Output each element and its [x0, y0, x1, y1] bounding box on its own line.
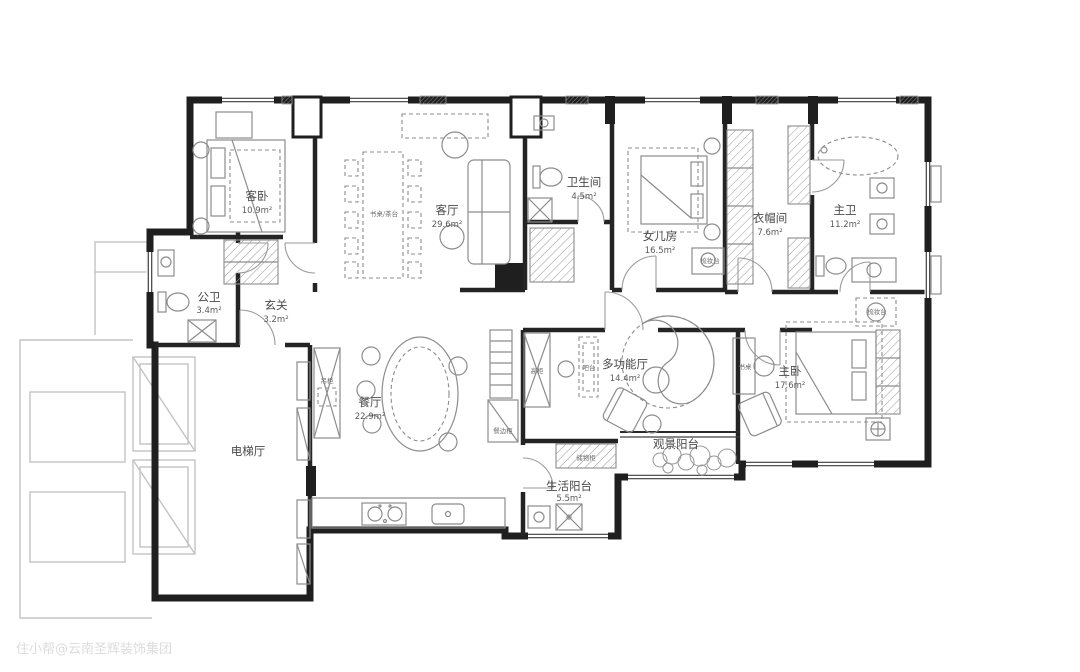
room-area-cloakroom: 7.6m² [757, 228, 782, 238]
column [511, 97, 541, 137]
window [925, 252, 942, 298]
fixture-label-desk-master: 书桌 [739, 362, 753, 371]
fixture-label-hanging-cabinet: 吊柜 [321, 376, 335, 385]
sofa [468, 160, 510, 264]
neighbor-structure [20, 242, 195, 618]
room-label-elevator-hall: 电梯厅 [231, 444, 266, 458]
stool [439, 433, 457, 451]
room-labels: 客卧 10.9m² 客厅 29.6m² 卫生间 4.5m² 女儿房 16.5m²… [196, 175, 860, 504]
floor-plan: 客卧 10.9m² 客厅 29.6m² 卫生间 4.5m² 女儿房 16.5m²… [0, 0, 1080, 672]
washbasin [158, 250, 174, 276]
bath-counter [852, 258, 896, 282]
column [293, 97, 321, 137]
tv-console [402, 114, 488, 138]
window [838, 97, 896, 104]
column [306, 466, 316, 496]
fixture-label-storage-cabinet: 储物柜 [576, 453, 596, 462]
window [350, 97, 408, 104]
multifunction-door [605, 292, 643, 330]
fixture-label-desk-tea-table: 书桌/茶台 [370, 209, 398, 218]
ac-unit-icon [866, 418, 890, 440]
room-area-guest-bedroom: 10.9m² [242, 206, 273, 216]
floor-drain [188, 320, 216, 342]
room-label-bathroom: 卫生间 [567, 175, 602, 189]
room-area-service-balcony: 5.5m² [556, 494, 581, 504]
room-label-guest-toilet: 公卫 [198, 290, 221, 304]
watermark: 住小帮@云南圣辉装饰集团 [16, 641, 172, 657]
bathtub [818, 137, 898, 175]
side-table [643, 415, 661, 433]
room-label-cloakroom: 衣帽间 [753, 211, 788, 225]
room-label-living-room: 客厅 [436, 203, 459, 217]
fixture-label-sideboard: 餐边柜 [493, 426, 513, 435]
elevator-shaft [133, 460, 195, 554]
hall-closet [530, 228, 574, 282]
room-area-living-room: 29.6m² [432, 220, 463, 230]
stool [362, 347, 380, 365]
room-label-multifunction-room: 多功能厅 [602, 357, 648, 371]
room-label-guest-bedroom: 客卧 [246, 189, 269, 203]
window [818, 461, 874, 468]
room-label-daughter-room: 女儿房 [643, 229, 678, 243]
window [925, 162, 942, 206]
room-area-guest-toilet: 3.4m² [196, 306, 221, 316]
fixture-label-dresser-master: 梳妆台 [867, 307, 887, 316]
cloak-to-bath-door [812, 160, 844, 192]
master-bedroom-door [745, 330, 780, 365]
room-area-dining-room: 22.9m² [355, 412, 386, 422]
laundry-sink-icon [528, 506, 550, 528]
wardrobe [727, 130, 753, 284]
stool [449, 357, 467, 375]
window [746, 461, 792, 468]
curved-sofa [622, 298, 732, 413]
hanging-cabinet [314, 348, 340, 438]
guest-bedroom-door [285, 243, 315, 273]
stool [558, 361, 574, 377]
shower-icon [528, 198, 552, 222]
floor-plan-drawing: 客卧 10.9m² 客厅 29.6m² 卫生间 4.5m² 女儿房 16.5m²… [0, 0, 1080, 672]
vanity-sinks [870, 178, 894, 234]
toilet-icon [533, 166, 562, 188]
sideboard [488, 400, 518, 442]
elevator-shaft [133, 357, 195, 451]
bedside-lamp-icon [704, 224, 720, 240]
room-label-dining-room: 餐厅 [359, 395, 382, 409]
toilet-icon [816, 256, 846, 276]
fixture-label-bar-table: 吧台 [583, 363, 596, 372]
master-bath-door [840, 262, 870, 292]
room-area-master-bathroom: 11.2m² [830, 220, 861, 230]
wardrobe [788, 126, 810, 288]
column [722, 96, 732, 124]
window [528, 533, 608, 540]
room-label-entryway: 玄关 [265, 298, 288, 312]
guest-cabinet [216, 112, 252, 138]
column [495, 263, 523, 290]
bedside-lamp-icon [704, 138, 720, 154]
guest-bed [207, 140, 285, 232]
master-wardrobe [876, 330, 900, 414]
column [808, 96, 818, 124]
fixture-label-tall-cabinet: 高柜 [531, 366, 545, 375]
room-label-view-balcony: 观景阳台 [653, 437, 699, 451]
wine-rack [490, 330, 512, 398]
room-area-master-bedroom: 17.6m² [775, 381, 806, 391]
room-label-master-bedroom: 主卧 [779, 364, 802, 378]
toilet-icon [158, 292, 189, 312]
fixture-label-dresser-daughter: 梳妆台 [700, 256, 720, 265]
window [645, 97, 700, 104]
room-label-master-bathroom: 主卫 [834, 203, 857, 217]
daughter-bed [628, 148, 707, 232]
round-chair [442, 132, 468, 158]
room-area-entryway: 3.2m² [263, 315, 288, 325]
washing-machine-icon [556, 504, 582, 530]
column [605, 96, 615, 124]
room-area-multifunction-room: 14.4m² [610, 374, 641, 384]
window [222, 97, 274, 104]
window [628, 474, 734, 481]
daughter-room-door [622, 256, 656, 290]
kitchen-counter [312, 498, 505, 528]
window [147, 252, 154, 292]
armchair [737, 391, 783, 438]
stove-icon [362, 503, 406, 525]
room-area-daughter-room: 16.5m² [645, 246, 676, 256]
room-label-service-balcony: 生活阳台 [546, 479, 592, 493]
dining-table [357, 337, 467, 451]
room-area-bathroom: 4.5m² [571, 192, 596, 202]
furniture [158, 112, 900, 584]
armchair [602, 386, 649, 434]
kitchen-sink-icon [432, 504, 464, 524]
